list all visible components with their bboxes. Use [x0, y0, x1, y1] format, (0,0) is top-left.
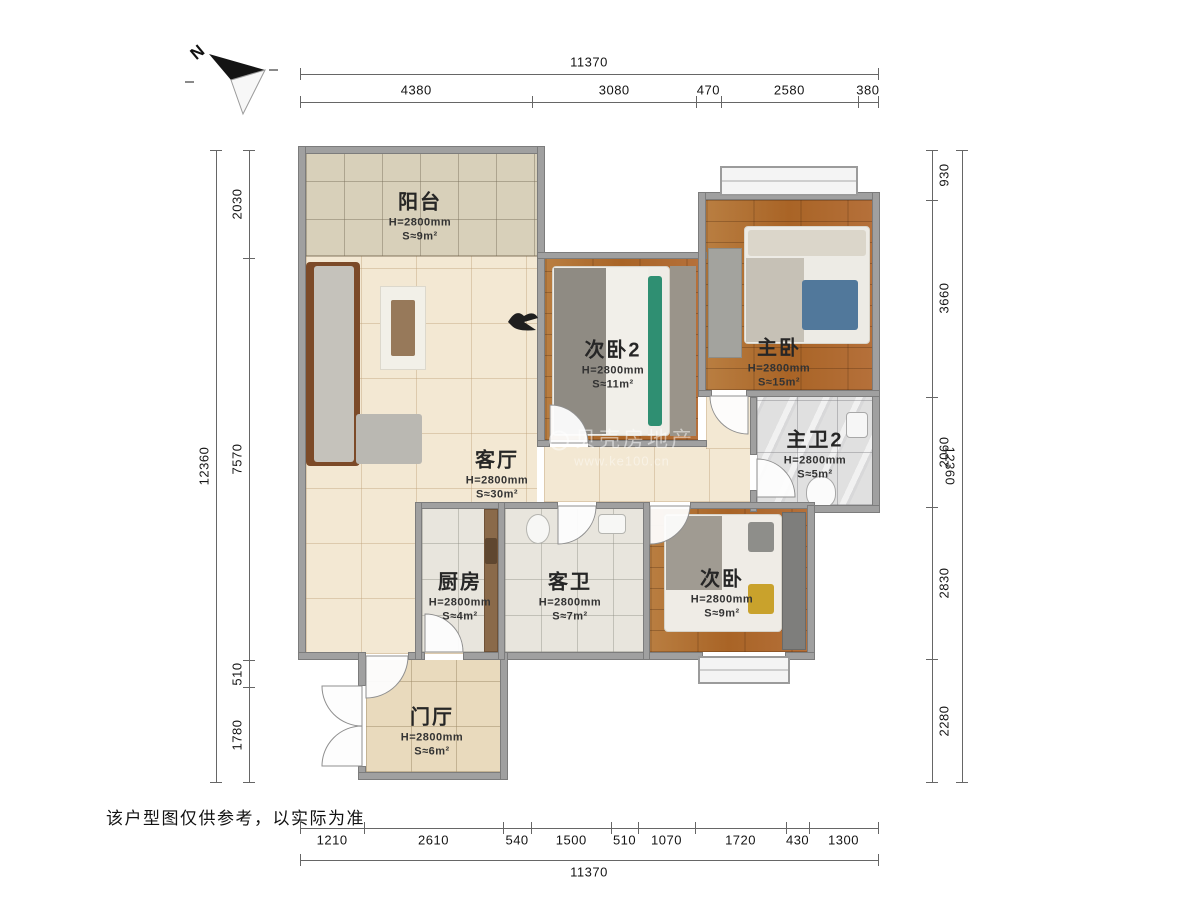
- dim-value: 2030: [230, 188, 245, 219]
- dim-tick: [243, 687, 255, 688]
- dim-tick: [243, 660, 255, 661]
- floorplan-canvas: N 阳台 H=2800mm S≈9m² 客厅 H=2800mm S≈30m² 次…: [0, 0, 1200, 900]
- dim-value: 1720: [725, 833, 756, 848]
- dim-tick: [210, 150, 222, 151]
- dim-tick: [531, 822, 532, 834]
- dim-tick: [503, 822, 504, 834]
- dim-value: 2580: [774, 83, 805, 98]
- dim-value: 1500: [556, 833, 587, 848]
- dim-line: [962, 150, 963, 782]
- dim-value: 930: [937, 163, 952, 186]
- dim-value: 470: [697, 83, 720, 98]
- dim-tick: [243, 258, 255, 259]
- dimensions-layer: 4380308047025803801137012102610540150051…: [0, 0, 1200, 900]
- dim-value: 1210: [317, 833, 348, 848]
- dim-value: 3660: [937, 283, 952, 314]
- dim-tick: [300, 854, 301, 866]
- dim-tick: [926, 659, 938, 660]
- dim-value: 11370: [570, 55, 608, 70]
- dim-tick: [878, 822, 879, 834]
- dim-tick: [956, 150, 968, 151]
- dim-value: 510: [613, 833, 636, 848]
- dim-line: [300, 860, 878, 861]
- dim-value: 7570: [230, 444, 245, 475]
- dim-value: 2610: [418, 833, 449, 848]
- dim-tick: [210, 782, 222, 783]
- dim-value: 380: [856, 83, 879, 98]
- dim-tick: [300, 68, 301, 80]
- dim-value: 1070: [651, 833, 682, 848]
- dim-tick: [611, 822, 612, 834]
- dim-line: [300, 828, 878, 829]
- dim-value: 1300: [828, 833, 859, 848]
- dim-line: [300, 102, 878, 103]
- dim-tick: [721, 96, 722, 108]
- dim-tick: [956, 782, 968, 783]
- dim-tick: [926, 507, 938, 508]
- dim-tick: [243, 782, 255, 783]
- dim-tick: [926, 397, 938, 398]
- dim-tick: [638, 822, 639, 834]
- dim-tick: [696, 96, 697, 108]
- dim-value: 4380: [401, 83, 432, 98]
- dim-line: [932, 150, 933, 782]
- dim-value: 1780: [230, 719, 245, 750]
- dim-value: 510: [230, 662, 245, 685]
- dim-tick: [243, 150, 255, 151]
- dim-tick: [300, 96, 301, 108]
- dim-value: 3080: [599, 83, 630, 98]
- dim-value: 2280: [937, 705, 952, 736]
- dim-tick: [878, 96, 879, 108]
- dim-value: 2830: [937, 568, 952, 599]
- dim-value: 12360: [197, 447, 212, 486]
- dim-value: 12360: [943, 447, 958, 486]
- dim-tick: [926, 200, 938, 201]
- dim-tick: [695, 822, 696, 834]
- dim-tick: [926, 150, 938, 151]
- dim-tick: [532, 96, 533, 108]
- dim-line: [300, 74, 878, 75]
- dim-value: 11370: [570, 865, 608, 880]
- dim-tick: [926, 782, 938, 783]
- dim-value: 540: [505, 833, 528, 848]
- dim-value: 430: [786, 833, 809, 848]
- disclaimer-text: 该户型图仅供参考，以实际为准: [106, 804, 365, 829]
- dim-line: [216, 150, 217, 782]
- dim-tick: [878, 68, 879, 80]
- dim-tick: [878, 854, 879, 866]
- dim-tick: [858, 96, 859, 108]
